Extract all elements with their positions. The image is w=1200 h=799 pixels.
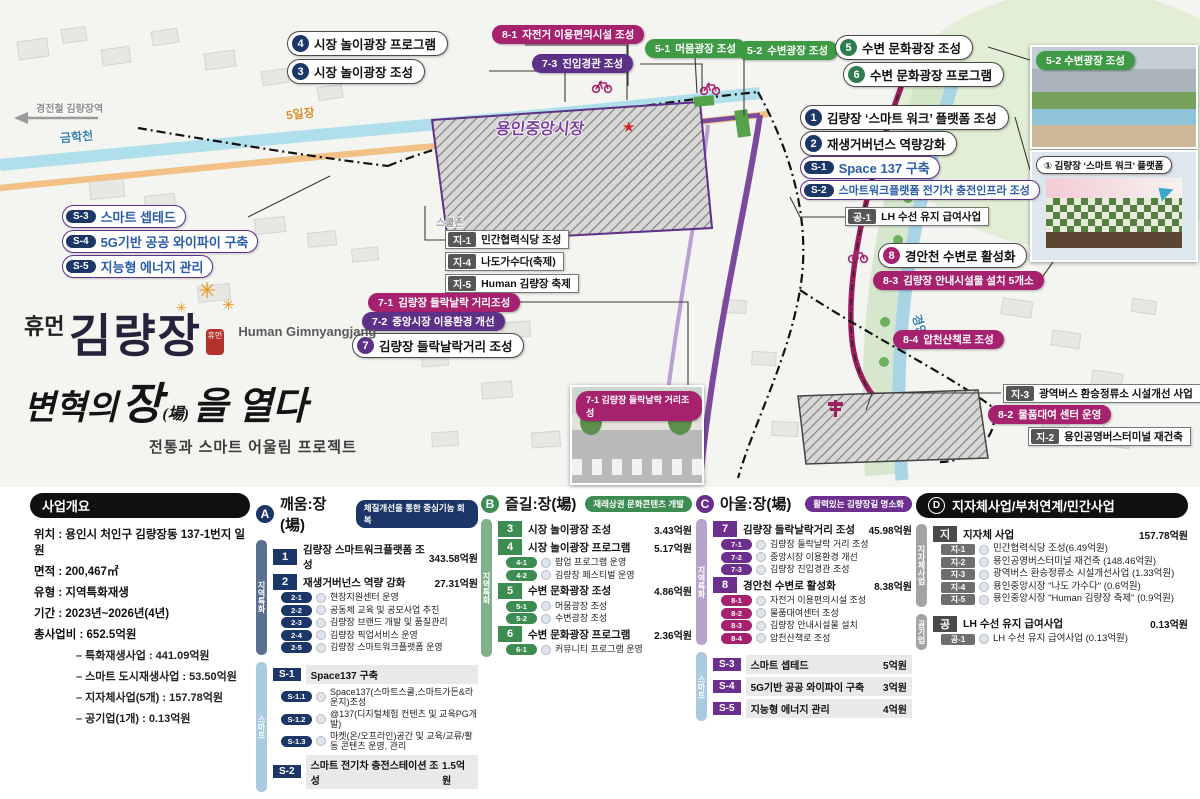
sub-badge: 지-5 — [941, 594, 975, 605]
sub-item: 2-3김량장 브랜드 개발 및 품질관리 — [281, 617, 478, 628]
callout-p82: 8-2 물품대여 센터 운영 — [988, 405, 1111, 424]
table-section: 스마트S-1Space137 구축S-1.1Space137(스마트스쿨,스마트… — [256, 662, 478, 792]
school-zone-label: 스쿨존 — [436, 214, 464, 229]
sub-text: 민간협력식당 조성(6.49억원) — [993, 544, 1108, 555]
callout-text: 머뭄광장 조성 — [675, 41, 736, 56]
callout-p81: 8-1 자전거 이용편의시설 조성 — [492, 25, 644, 44]
column-tag: 체질개선을 통한 중심기능 회복 — [356, 500, 478, 528]
sub-item: 6-1커뮤니티 프로그램 운영 — [506, 644, 692, 655]
s-badge: S-5 — [66, 260, 96, 273]
sub-item: 4-1팝업 프로그램 운영 — [506, 557, 692, 568]
sub-badge: 4-2 — [506, 570, 537, 581]
sub-text: 중앙시장 이용환경 개선 — [770, 552, 858, 562]
row-title: 김량장 들락날락거리 조성 — [743, 522, 865, 537]
callout-text: 스마트 셉테드 — [101, 207, 176, 226]
ministry-icon — [316, 692, 326, 702]
number-badge: 2 — [805, 135, 822, 152]
callout-text: 민간협력식당 조성 — [481, 232, 561, 247]
ministry-icon — [541, 614, 551, 624]
ministry-icon — [756, 540, 766, 550]
sub-badge: 7-2 — [721, 552, 752, 563]
ministry-icon — [979, 582, 989, 592]
row-badge: 8 — [713, 577, 737, 593]
row-amount: 8.38억원 — [874, 578, 912, 593]
sub-badge: 지-2 — [941, 557, 975, 568]
ministry-icon — [756, 596, 766, 606]
number-badge: 6 — [848, 66, 865, 83]
row-title: LH 수선 유지 급여사업 — [963, 616, 1146, 631]
row-amount: 4.86억원 — [654, 583, 692, 598]
callout-p73: 7-3 진입경관 조성 — [532, 54, 633, 73]
overview-line: 총사업비 : 652.5억원 — [34, 626, 252, 642]
ministry-icon — [316, 593, 326, 603]
sub-badge: 7-3 — [721, 564, 752, 575]
purple-street — [700, 115, 760, 480]
number-badge: 4 — [292, 35, 309, 52]
row-title: 시장 놀이광장 조성 — [528, 522, 650, 537]
sub-badge: 2-4 — [281, 630, 312, 641]
photo-badge: 7-1 김량장 들락날락 거리조성 — [576, 391, 702, 421]
bus-terminal-block — [798, 390, 988, 464]
slogan-hanja: (場) — [162, 406, 189, 423]
sub-badge: S-1.1 — [281, 691, 312, 702]
overview-panel: 사업개요 위치 : 용인시 처인구 김량장동 137-1번지 일원면적 : 20… — [30, 493, 252, 731]
sub-badge: 2-3 — [281, 617, 312, 628]
row-amount: 27.31억원 — [435, 575, 478, 590]
callout-text: Space 137 구축 — [839, 158, 930, 177]
row-title: 김량장 스마트워크플랫폼 조성 — [303, 542, 425, 572]
callout-p84: 8-4 압천산책로 조성 — [893, 330, 1004, 349]
s-badge: S-2 — [804, 184, 834, 197]
sub-text: 수변광장 조성 — [555, 613, 607, 623]
sub-item: 5-1머뭄광장 조성 — [506, 601, 692, 612]
row-title: Space137 구축 — [311, 667, 378, 682]
callout-text: 재생거버넌스 역량강화 — [827, 134, 945, 153]
column-b-header: B 즐길:장(場) 재래상권 문화콘텐츠 개발 — [481, 493, 692, 514]
callout-text: 시장 놀이광장 조성 — [314, 62, 413, 81]
row-amount: 5억원 — [883, 657, 907, 672]
sub-badge: 8-3 — [721, 620, 752, 631]
sub-item: 8-4압천산책로 조성 — [721, 633, 912, 644]
row-badge: S-5 — [713, 702, 741, 715]
sub-text: 김량장 안내시설물 설치 — [770, 620, 858, 630]
callout-text: 김량장 안내시설물 설치 5개소 — [903, 273, 1034, 288]
sub-text: 김량장 스마트워크플랫폼 운영 — [330, 642, 443, 652]
section-strip-label: 지자체사업 — [916, 524, 927, 607]
callout-p51: 5-1 머뭄광장 조성 — [645, 39, 746, 58]
building-base — [1046, 232, 1182, 248]
sub-text: 팝업 프로그램 운영 — [555, 557, 626, 567]
ministry-icon — [756, 565, 766, 575]
callout-pj3: 지-3 광역버스 환승정류소 시설개선 사업 — [1003, 384, 1200, 403]
overview-header-label: 사업개요 — [42, 496, 90, 515]
sub-text: 머뭄광장 조성 — [555, 601, 607, 611]
sub-item: 8-3김량장 안내시설물 설치 — [721, 620, 912, 631]
column-title: 깨움:장(場) — [280, 493, 350, 535]
callout-text: LH 수선 유지 급여사업 — [881, 209, 981, 224]
row-badge: 3 — [498, 521, 522, 537]
sub-badge: 7-1 — [721, 539, 752, 550]
sub-text: 김량장 픽업서비스 운영 — [330, 630, 418, 640]
section-rows: 공LH 수선 유지 급여사업0.13억원공-1LH 수선 유지 급여사업 (0.… — [933, 614, 1188, 650]
sub-text: 커뮤니티 프로그램 운영 — [555, 644, 643, 654]
sub-badge: 7-3 — [542, 58, 557, 70]
overview-line: 유형 : 지역특화재생 — [34, 584, 252, 600]
row-title: 시장 놀이광장 프로그램 — [528, 540, 650, 555]
overview-sub-line: – 지자체사업(5개) : 157.78억원 — [76, 689, 252, 705]
table-section: 지자체사업지지자체 사업157.78억원지-1민간협력식당 조성(6.49억원)… — [916, 524, 1188, 607]
sub-text: 압천산책로 조성 — [770, 633, 830, 643]
column-d-header: D 지자체사업/부처연계/민간사업 — [916, 493, 1188, 518]
sub-item: 8-2물품대여센터 조성 — [721, 608, 912, 619]
overview-line: 위치 : 용인시 처인구 김량장동 137-1번지 일원 — [34, 526, 252, 558]
sub-text: 공동체 교육 및 공모사업 추진 — [330, 605, 439, 615]
row-badge: 1 — [273, 549, 297, 565]
number-badge: 5 — [840, 39, 857, 56]
sub-badge: 8-1 — [502, 29, 517, 41]
callout-p6: 6 수변 문화광장 프로그램 — [843, 62, 1004, 87]
table-row: 8경안천 수변로 활성화8.38억원 — [713, 577, 912, 593]
poster: ★ 금학천 경안천 용인중앙시장 5일장 스쿨존 — [0, 0, 1200, 700]
sub-item: 지-4용인중앙시장 "나도 가수다" (0.6억원) — [941, 582, 1188, 593]
ministry-icon — [316, 736, 326, 746]
overview-sub-line: – 특화재생사업 : 441.09억원 — [76, 647, 252, 663]
s-badge: S-3 — [66, 210, 96, 223]
callout-p8: 8 경안천 수변로 활성화 — [878, 243, 1027, 268]
crosswalk — [572, 459, 702, 475]
sub-text: 김량장 진입경관 조성 — [770, 564, 850, 574]
ministry-icon — [316, 630, 326, 640]
overview-sub-line: – 스마트 도시재생사업 : 53.50억원 — [76, 668, 252, 684]
column-a-header: A 깨움:장(場) 체질개선을 통한 중심기능 회복 — [256, 493, 478, 535]
callout-p3: 3 시장 놀이광장 조성 — [287, 59, 425, 84]
station-label: 경전철 김량장역 — [36, 100, 103, 115]
rect-badge: 지-4 — [448, 254, 476, 269]
callout-text: 수변광장 조성 — [767, 43, 828, 58]
section-rows: S-3스마트 셉테드5억원S-45G기반 공공 와이파이 구축3억원S-5지능형… — [713, 652, 912, 721]
building-facade — [1046, 198, 1182, 232]
callout-ps5: S-5 지능형 에너지 관리 — [62, 255, 213, 278]
sub-badge: S-1.3 — [281, 736, 312, 747]
smart-row: S-2스마트 전기차 충전스테이션 조성1.5억원 — [273, 755, 478, 789]
callout-text: 스마트워크플랫폼 전기차 충전인프라 조성 — [839, 182, 1030, 198]
column-title: 지자체사업/부처연계/민간사업 — [952, 496, 1115, 515]
row-amount: 157.78억원 — [1139, 527, 1188, 542]
row-badge: S-2 — [273, 765, 301, 778]
table-section: 지역특화1김량장 스마트워크플랫폼 조성343.58억원2재생거버넌스 역량 강… — [256, 540, 478, 655]
callout-pg1: 공-1 LH 수선 유지 급여사업 — [845, 207, 989, 226]
ministry-icon — [979, 545, 989, 555]
row-title-band: 스마트 셉테드5억원 — [746, 655, 912, 674]
column-letter: A — [256, 505, 274, 523]
summary-panel: 사업개요 위치 : 용인시 처인구 김량장동 137-1번지 일원면적 : 20… — [0, 487, 1200, 700]
ministry-icon — [756, 552, 766, 562]
table-row: 4시장 놀이광장 프로그램5.17억원 — [498, 539, 692, 555]
sub-text: 마켓(온/오프라인)공간 및 교육/교류/활동 콘텐츠 운영, 관리 — [330, 731, 478, 752]
sub-text: 현장지원센터 운영 — [330, 592, 399, 602]
sub-item: S-1.3마켓(온/오프라인)공간 및 교육/교류/활동 콘텐츠 운영, 관리 — [281, 731, 478, 752]
sub-text: 김량장 페스티벌 운영 — [555, 570, 635, 580]
bicycle-icon — [593, 81, 612, 92]
sub-item: 7-2중앙시장 이용환경 개선 — [721, 552, 912, 563]
sub-badge: 2-1 — [281, 592, 312, 603]
row-badge: 7 — [713, 521, 737, 537]
column-b: B 즐길:장(場) 재래상권 문화콘텐츠 개발 지역특화3시장 놀이광장 조성3… — [481, 493, 692, 664]
table-section: 지역특화7김량장 들락날락거리 조성45.98억원7-1김량장 들락날락 거리 … — [696, 519, 912, 645]
column-letter: C — [696, 495, 714, 513]
callout-text: 용인공영버스터미널 재건축 — [1064, 429, 1183, 444]
sub-text: 물품대여센터 조성 — [770, 608, 839, 618]
photo-riverside-render: 5-2 수변광장 조성 — [1030, 45, 1198, 149]
five-day-market-label: 5일장 — [285, 104, 315, 124]
callout-p1: 1 김량장 ‘스마트 워크’ 플랫폼 조성 — [800, 105, 1009, 130]
sub-item: 지-3광역버스 환승정류소 시설개선사업 (1.33억원) — [941, 569, 1188, 580]
rect-badge: 지-5 — [448, 276, 476, 291]
section-rows: 1김량장 스마트워크플랫폼 조성343.58억원2재생거버넌스 역량 강화27.… — [273, 540, 478, 655]
row-title: 수변 문화광장 조성 — [528, 583, 650, 598]
ministry-icon — [541, 570, 551, 580]
sub-item: S-1.2@137(디지털체험 컨텐츠 및 교육PG개발) — [281, 709, 478, 730]
sub-item: 8-1자전거 이용편의시설 조성 — [721, 595, 912, 606]
ministry-icon — [756, 633, 766, 643]
ministry-icon — [316, 605, 326, 615]
table-row: 공LH 수선 유지 급여사업0.13억원 — [933, 616, 1188, 632]
column-tag: 활력있는 김량장길 명소화 — [805, 496, 912, 512]
rect-badge: 지-2 — [1031, 429, 1059, 444]
station-arrow-head — [14, 112, 28, 124]
market-label: 용인중앙시장 — [495, 115, 586, 139]
slogan-part: 을 열다 — [193, 386, 307, 428]
callout-p5: 5 수변 문화광장 조성 — [835, 35, 973, 60]
sub-item: 지-5용인중앙시장 "Human 김량장 축제" (0.9억원) — [941, 594, 1188, 605]
table-section: 공기업공LH 수선 유지 급여사업0.13억원공-1LH 수선 유지 급여사업 … — [916, 614, 1188, 650]
sub-text: 김량장 브랜드 개발 및 품질관리 — [330, 617, 448, 627]
sub-text: 광역버스 환승정류소 시설개선사업 (1.33억원) — [993, 569, 1174, 580]
callout-text: 자전거 이용편의시설 조성 — [522, 27, 634, 42]
sub-badge: 8-4 — [721, 633, 752, 644]
sub-item: 공-1LH 수선 유지 급여사업 (0.13억원) — [941, 634, 1188, 645]
section-rows: 3시장 놀이광장 조성3.43억원4시장 놀이광장 프로그램5.17억원4-1팝… — [498, 519, 692, 657]
ministry-icon — [541, 558, 551, 568]
section-rows: 지지자체 사업157.78억원지-1민간협력식당 조성(6.49억원)지-2용인… — [933, 524, 1188, 607]
callout-text: 경안천 수변로 활성화 — [905, 246, 1015, 265]
column-tag: 재래상권 문화콘텐츠 개발 — [585, 496, 692, 512]
column-letter: D — [928, 497, 945, 514]
rect-badge: 지-3 — [1006, 386, 1034, 401]
overview-header: 사업개요 — [30, 493, 250, 518]
ministry-icon — [979, 634, 989, 644]
row-amount: 0.13억원 — [1150, 616, 1188, 631]
sub-badge: 지-4 — [941, 582, 975, 593]
smart-row: S-5지능형 에너지 관리4억원 — [713, 699, 912, 718]
row-badge: S-3 — [713, 658, 741, 671]
s-badge: S-1 — [804, 161, 834, 174]
ministry-icon — [541, 601, 551, 611]
callout-p4: 4 시장 놀이광장 프로그램 — [287, 31, 448, 56]
sub-badge: 지-3 — [941, 569, 975, 580]
photo-badge: ① 김량장 ‘스마트 워크’ 플랫폼 — [1036, 156, 1172, 174]
sub-badge: 6-1 — [506, 644, 537, 655]
column-letter: B — [481, 495, 499, 513]
table-row: 2재생거버넌스 역량 강화27.31억원 — [273, 574, 478, 590]
callout-text: 나도가수다(축제) — [481, 254, 556, 269]
section-strip-label: 지역특화 — [481, 519, 492, 657]
sub-text: @137(디지털체험 컨텐츠 및 교육PG개발) — [330, 709, 478, 730]
subtitle: 전통과 스마트 어울림 프로젝트 — [149, 436, 444, 457]
sub-item: 7-3김량장 진입경관 조성 — [721, 564, 912, 575]
row-title: 지능형 에너지 관리 — [751, 701, 830, 716]
sub-badge: 8-4 — [903, 334, 918, 346]
section-strip-label: 스마트 — [256, 662, 267, 792]
photo-smart-work-platform: ① 김량장 ‘스마트 워크’ 플랫폼 — [1030, 150, 1198, 262]
ministry-icon — [979, 557, 989, 567]
table-section: 지역특화3시장 놀이광장 조성3.43억원4시장 놀이광장 프로그램5.17억원… — [481, 519, 692, 657]
row-title: 수변 문화광장 프로그램 — [528, 627, 650, 642]
callout-p2: 2 재생거버넌스 역량강화 — [800, 131, 957, 156]
row-badge: 4 — [498, 539, 522, 555]
slogan: 변혁의 장(場) 을 열다 — [24, 368, 444, 432]
row-amount: 343.58억원 — [429, 550, 478, 565]
row-title-band: Space137 구축 — [306, 665, 478, 684]
ministry-icon — [756, 608, 766, 618]
sub-badge: 8-3 — [883, 275, 898, 287]
sub-item: 2-2공동체 교육 및 공모사업 추진 — [281, 605, 478, 616]
callout-pj1: 지-1 민간협력식당 조성 — [445, 230, 569, 249]
row-title: 재생거버넌스 역량 강화 — [303, 575, 431, 590]
ministry-icon — [316, 618, 326, 628]
overview-line: 면적 : 200,467㎡ — [34, 563, 252, 579]
table-row: 6수변 문화광장 프로그램2.36억원 — [498, 626, 692, 642]
smart-row: S-1Space137 구축 — [273, 665, 478, 684]
sub-item: 2-4김량장 픽업서비스 운영 — [281, 630, 478, 641]
sub-badge: 공-1 — [941, 634, 975, 645]
section-rows: 7김량장 들락날락거리 조성45.98억원7-1김량장 들락날락 거리 조성7-… — [713, 519, 912, 645]
sub-badge: 8-1 — [721, 595, 752, 606]
ministry-icon — [756, 621, 766, 631]
callout-pj2: 지-2 용인공영버스터미널 재건축 — [1028, 427, 1191, 446]
callout-text: 광역버스 환승정류소 시설개선 사업 — [1039, 386, 1193, 401]
plaza-5-1 — [694, 95, 715, 107]
sub-badge: 8-2 — [998, 409, 1013, 421]
smart-row: S-45G기반 공공 와이파이 구축3억원 — [713, 677, 912, 696]
project-map: ★ 금학천 경안천 용인중앙시장 5일장 스쿨존 — [0, 0, 1200, 487]
callout-text: 수변 문화광장 프로그램 — [870, 65, 992, 84]
sub-badge: 5-2 — [747, 45, 762, 57]
column-a: A 깨움:장(場) 체질개선을 통한 중심기능 회복 지역특화1김량장 스마트워… — [256, 493, 478, 799]
sub-item: 2-1현장지원센터 운영 — [281, 592, 478, 603]
title-block: 휴먼 김량장휴먼 Human Gimnyangjang 변혁의 장(場) 을 열… — [24, 300, 444, 457]
overview-lines: 위치 : 용인시 처인구 김량장동 137-1번지 일원면적 : 200,467… — [30, 526, 252, 726]
table-row: 1김량장 스마트워크플랫폼 조성343.58억원 — [273, 542, 478, 572]
table-row: 5수변 문화광장 조성4.86억원 — [498, 583, 692, 599]
callout-ps3: S-3 스마트 셉테드 — [62, 205, 186, 228]
sub-badge: 2-5 — [281, 642, 312, 653]
number-badge: 1 — [805, 109, 822, 126]
row-title: 경안천 수변로 활성화 — [743, 578, 870, 593]
sub-text: 용인중앙시장 "나도 가수다" (0.6억원) — [993, 582, 1141, 593]
ministry-icon — [541, 645, 551, 655]
table-section: 스마트S-3스마트 셉테드5억원S-45G기반 공공 와이파이 구축3억원S-5… — [696, 652, 912, 721]
star-marker: ★ — [622, 119, 635, 136]
table-row: 3시장 놀이광장 조성3.43억원 — [498, 521, 692, 537]
row-badge: 5 — [498, 583, 522, 599]
ministry-icon — [316, 643, 326, 653]
sub-badge: S-1.2 — [281, 714, 312, 725]
callout-text: 물품대여 센터 운영 — [1018, 407, 1101, 422]
sub-item: S-1.1Space137(스마트스쿨,스마트가든&라운지)조성 — [281, 687, 478, 708]
title-romanized: Human Gimnyangjang — [238, 324, 376, 339]
sub-badge: 8-2 — [721, 608, 752, 619]
callout-p52: 5-2 수변광장 조성 — [737, 41, 838, 60]
callout-pj4: 지-4 나도가수다(축제) — [445, 252, 564, 271]
row-title: 지자체 사업 — [963, 527, 1135, 542]
slogan-part: 변혁의 — [24, 390, 118, 427]
row-amount: 4억원 — [883, 701, 907, 716]
slogan-part: 장 — [122, 380, 162, 429]
row-badge: 2 — [273, 574, 297, 590]
sub-badge: 2-2 — [281, 605, 312, 616]
callout-text: 5G기반 공공 와이파이 구축 — [101, 232, 249, 251]
rect-badge: 공-1 — [848, 209, 876, 224]
row-amount: 1.5억원 — [442, 757, 473, 787]
stream-label-geumhak: 금학천 — [59, 127, 93, 147]
row-badge: S-1 — [273, 668, 301, 681]
sub-item: 5-2수변광장 조성 — [506, 613, 692, 624]
row-badge: 공 — [933, 616, 957, 632]
row-title: 스마트 전기차 충전스테이션 조성 — [311, 757, 442, 787]
section-strip-label: 지역특화 — [696, 519, 707, 645]
column-d: D 지자체사업/부처연계/민간사업 지자체사업지지자체 사업157.78억원지-… — [916, 493, 1188, 657]
column-title: 즐길:장(場) — [505, 493, 576, 514]
project-title: 김량장 — [69, 311, 202, 362]
sub-text: Space137(스마트스쿨,스마트가든&라운지)조성 — [330, 687, 478, 708]
callout-text: 김량장 ‘스마트 워크’ 플랫폼 조성 — [827, 108, 997, 127]
sub-badge: 지-1 — [941, 544, 975, 555]
row-title-band: 스마트 전기차 충전스테이션 조성1.5억원 — [306, 755, 478, 789]
title-line: 휴먼 김량장휴먼 Human Gimnyangjang — [24, 300, 444, 366]
photo-badge: 5-2 수변광장 조성 — [1036, 51, 1135, 70]
callout-text: 시장 놀이광장 프로그램 — [314, 34, 436, 53]
sub-badge: 5-2 — [506, 613, 537, 624]
seal-stamp-icon: 휴먼 — [206, 329, 224, 355]
callout-pj5: 지-5 Human 김량장 축제 — [445, 274, 579, 293]
bicycle-icon — [849, 251, 868, 262]
table-row: 7김량장 들락날락거리 조성45.98억원 — [713, 521, 912, 537]
sub-text: 용인중앙시장 "Human 김량장 축제" (0.9억원) — [993, 594, 1174, 605]
sub-text: 용인공영버스터미널 재건축 (148.46억원) — [993, 557, 1156, 568]
row-title: 5G기반 공공 와이파이 구축 — [751, 679, 865, 694]
overview-line: 기간 : 2023년~2026년(4년) — [34, 605, 252, 621]
callout-text: 지능형 에너지 관리 — [101, 257, 204, 276]
row-badge: 6 — [498, 626, 522, 642]
row-amount: 5.17억원 — [654, 540, 692, 555]
row-title-band: 5G기반 공공 와이파이 구축3억원 — [746, 677, 912, 696]
callout-ps4: S-4 5G기반 공공 와이파이 구축 — [62, 230, 258, 253]
sub-item: 4-2김량장 페스티벌 운영 — [506, 570, 692, 581]
section-strip-label: 공기업 — [916, 614, 927, 650]
sub-badge: 5-1 — [506, 601, 537, 612]
sub-item: 2-5김량장 스마트워크플랫폼 운영 — [281, 642, 478, 653]
column-c-header: C 아울:장(場) 활력있는 김량장길 명소화 — [696, 493, 912, 514]
sub-text: LH 수선 유지 급여사업 (0.13억원) — [993, 634, 1128, 645]
column-c: C 아울:장(場) 활력있는 김량장길 명소화 지역특화7김량장 들락날락거리 … — [696, 493, 912, 728]
sub-text: 자전거 이용편의시설 조성 — [770, 595, 866, 605]
callout-ps2: S-2 스마트워크플랫폼 전기차 충전인프라 조성 — [800, 180, 1040, 200]
sub-badge: 4-1 — [506, 557, 537, 568]
row-amount: 45.98억원 — [869, 522, 912, 537]
section-strip-label: 스마트 — [696, 652, 707, 721]
s-badge: S-4 — [66, 235, 96, 248]
